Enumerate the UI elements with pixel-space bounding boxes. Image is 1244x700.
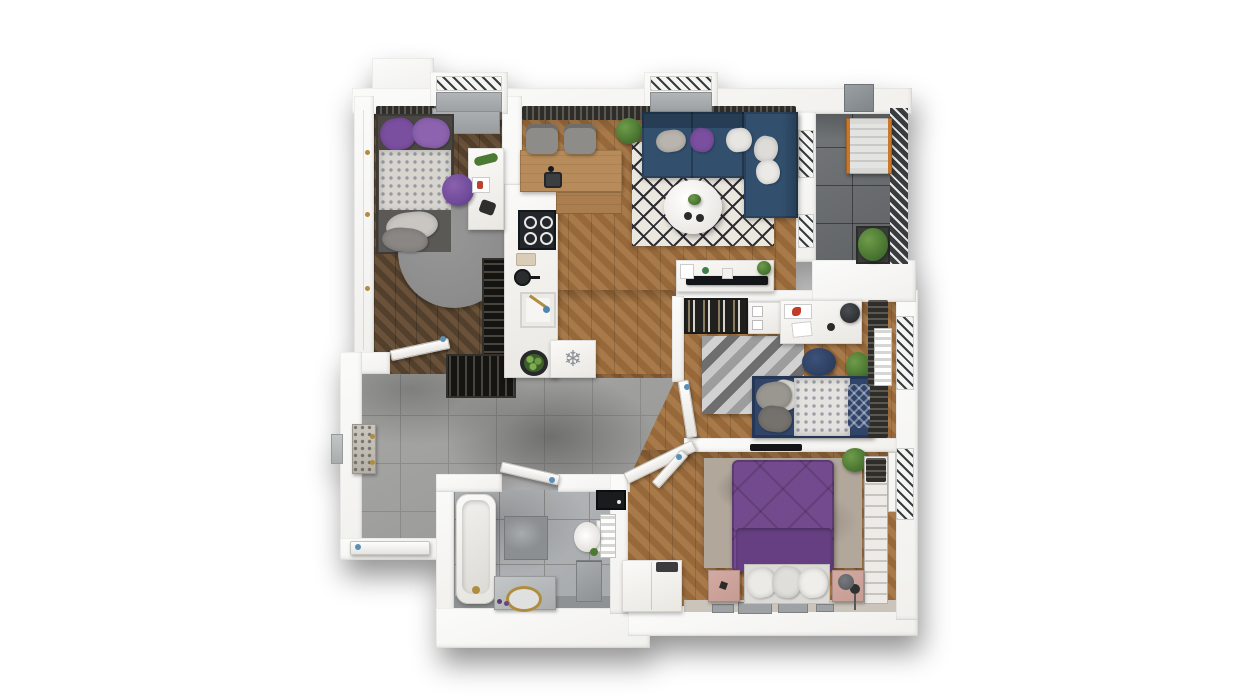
balcony-plant xyxy=(858,228,888,261)
tv-console-plant xyxy=(757,261,771,275)
cosmetic-bottle-2 xyxy=(504,601,509,606)
pan-handle xyxy=(530,276,540,279)
coffee-table xyxy=(664,180,722,234)
dresser-tray xyxy=(656,562,678,572)
gold-basin xyxy=(506,586,542,612)
kids-poster-red-motif xyxy=(792,307,801,316)
corner-sink xyxy=(544,172,562,188)
kids-pillow-navy-diamond xyxy=(848,384,870,428)
picture-frame-3 xyxy=(778,603,808,613)
counter-wood-top xyxy=(520,150,622,192)
kids-duvet xyxy=(794,378,850,436)
desk-paper-accent xyxy=(477,181,483,189)
counter-wood-return xyxy=(556,192,622,214)
cooktop xyxy=(518,210,556,250)
kids-window xyxy=(896,316,914,390)
exterior-utility-panel xyxy=(331,434,343,464)
cutting-boards xyxy=(516,253,536,266)
tv-console-card xyxy=(680,264,694,279)
wardrobe-mirror-panel xyxy=(888,452,896,512)
bathtub-gold-faucet xyxy=(472,586,480,594)
burner-1 xyxy=(524,216,537,229)
balcony-door-panel-a xyxy=(798,130,814,178)
master-wall-tv xyxy=(750,444,802,451)
shoe-cabinet-handle-2 xyxy=(370,460,375,465)
cosmetic-bottle-1 xyxy=(497,599,502,604)
ac-unit xyxy=(844,84,874,112)
washing-machine xyxy=(576,560,602,602)
bathtub-basin xyxy=(462,500,490,594)
table-cup-1 xyxy=(684,212,692,220)
wall-balcony-bottom xyxy=(812,260,916,302)
patterned-duvet xyxy=(379,150,451,212)
tv-console-box xyxy=(722,268,733,279)
wardrobe-hanging-clothes xyxy=(866,458,886,482)
building: ❄ xyxy=(0,0,1244,700)
picture-frame-1 xyxy=(712,604,734,613)
bar-chair-1 xyxy=(526,124,558,154)
kids-radiator xyxy=(874,328,892,386)
closet-door-seam xyxy=(363,110,364,350)
bar-chair-2 xyxy=(564,124,596,154)
kids-bookshelf xyxy=(684,298,748,334)
pan xyxy=(514,269,531,286)
storage-box-label-2 xyxy=(752,320,763,330)
living-plant xyxy=(616,118,642,144)
bedroom-door-handle xyxy=(440,336,446,342)
mirror-cabinet-knob xyxy=(617,500,621,504)
table-cup-2 xyxy=(696,214,704,222)
bathroom-door-handle xyxy=(549,477,555,483)
lounge-chair-cushion xyxy=(850,124,888,168)
closet-handle-2 xyxy=(365,212,370,217)
nightstand-vase xyxy=(838,574,854,590)
living-window-glazing xyxy=(650,76,712,91)
entrance-door-handle xyxy=(355,544,361,550)
kitchen-sink xyxy=(520,292,556,328)
kitchen-plant xyxy=(524,354,544,372)
dresser-seam xyxy=(651,562,652,610)
tv-console-plant-dot xyxy=(702,267,709,274)
closet-handle-1 xyxy=(365,150,370,155)
bedroom-window-glazing xyxy=(436,76,502,91)
wall-bathroom-left xyxy=(436,474,454,624)
storage-box-label-1 xyxy=(752,306,763,317)
bathroom-plant xyxy=(590,548,598,556)
wall-kids-left xyxy=(672,296,684,382)
wall-left-with-closet xyxy=(354,96,374,358)
burner-3 xyxy=(524,232,537,245)
towel-radiator xyxy=(600,514,616,558)
living-window-sill xyxy=(650,92,712,112)
black-mirror-cabinet xyxy=(596,490,626,510)
kids-door-handle xyxy=(684,384,690,390)
balcony-door-panel-b xyxy=(798,214,814,248)
dark-tile-panel xyxy=(504,516,548,560)
picture-frame-4 xyxy=(816,604,834,612)
bedroom-window-sill xyxy=(436,92,502,112)
floor-lamp-stem xyxy=(854,594,856,610)
master-door-handle xyxy=(676,454,682,460)
faucet xyxy=(548,166,554,172)
desk-chair-purple xyxy=(442,174,474,206)
kids-desk-chair xyxy=(840,303,860,323)
closet-handle-3 xyxy=(365,286,370,291)
table-plant xyxy=(688,194,701,205)
shoe-cabinet xyxy=(352,424,376,474)
sink-drain xyxy=(543,306,550,313)
kids-desk-cup xyxy=(827,323,835,331)
wall-bathroom-top-left xyxy=(436,474,502,492)
entrance-door xyxy=(350,541,430,555)
snowflake-icon: ❄ xyxy=(550,340,596,378)
apartment-floor-plan: ❄ xyxy=(0,0,1244,700)
balcony-railing xyxy=(890,108,908,264)
shoe-cabinet-handle-1 xyxy=(370,434,375,439)
kids-book xyxy=(791,321,812,338)
kids-pouf xyxy=(802,348,836,376)
wall-bathroom-bottom xyxy=(436,608,650,648)
toilet-bowl xyxy=(574,522,600,552)
burner-4 xyxy=(540,232,553,245)
master-window xyxy=(896,448,914,520)
burner-2 xyxy=(540,216,553,229)
